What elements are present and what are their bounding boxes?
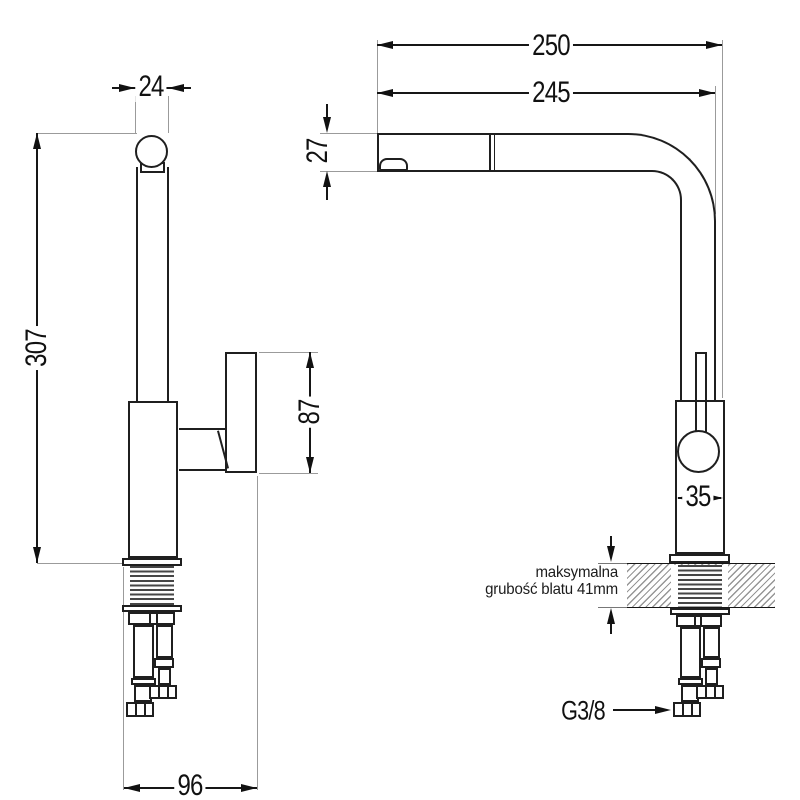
ext-250-right: [722, 40, 723, 398]
ext-250-left: [377, 40, 378, 133]
front-handle-plate: [225, 352, 257, 473]
arrow-87-top: [306, 352, 314, 368]
front-hose-b-nut: [149, 685, 177, 699]
front-hose-a-coupler: [131, 678, 156, 685]
front-knob-circle: [135, 135, 168, 168]
front-connector-line-2: [156, 613, 158, 624]
ext-96-left: [123, 567, 124, 790]
side-hose-a: [680, 627, 701, 678]
side-handle-knob: [677, 430, 720, 473]
leaderline-g38: [613, 709, 657, 711]
front-hose-a-nut: [126, 702, 154, 717]
ext-27-top: [320, 133, 377, 134]
side-nut-a-facet-2: [691, 703, 693, 716]
front-hose-b-coupler: [154, 658, 174, 668]
side-pullout-joint-1: [489, 134, 491, 170]
side-spout-inner: [377, 170, 682, 400]
dimshaft-27-top: [326, 104, 328, 117]
side-aerator: [379, 158, 408, 172]
front-spout-column: [136, 167, 169, 401]
arrow-27-top: [323, 117, 331, 133]
ext-245-right: [715, 86, 716, 214]
side-hose-b-nut: [696, 685, 724, 699]
side-hose-a-coupler: [678, 678, 703, 685]
arrow-96-left: [124, 784, 140, 792]
front-hose-b-tube: [158, 668, 171, 685]
label-27: 27: [303, 138, 333, 163]
side-hose-a-nut: [673, 702, 701, 717]
side-connector-line-2: [700, 616, 702, 626]
ext-24-right: [168, 96, 169, 133]
label-35: 35: [682, 482, 714, 512]
side-hose-b-tube: [705, 668, 718, 685]
side-nut-b-facet-1: [705, 686, 707, 698]
arrow-250-left: [377, 41, 393, 49]
dimshaft-27-bottom: [326, 187, 328, 200]
arrow-307-bottom: [33, 547, 41, 563]
arrow-g38: [655, 706, 671, 714]
label-24: 24: [135, 72, 167, 102]
side-threaded-shank: [678, 565, 722, 607]
front-base-flange: [122, 558, 182, 566]
label-87: 87: [295, 396, 325, 428]
arrow-41-bottom: [607, 608, 615, 624]
arrow-245-right: [699, 89, 715, 97]
label-245: 245: [529, 78, 573, 108]
front-nut-a-facet-2: [144, 703, 146, 716]
side-nut-a-facet-1: [682, 703, 684, 716]
ext-87-bottom: [259, 473, 318, 474]
side-hose-b: [703, 627, 720, 658]
side-base-flange: [669, 554, 730, 563]
arrow-27-bottom: [323, 171, 331, 187]
front-nut-a-facet-1: [135, 703, 137, 716]
arrow-87-bottom: [306, 457, 314, 473]
side-mounting-plate: [670, 608, 730, 615]
arrow-41-top: [607, 546, 615, 562]
ext-307-top: [37, 133, 137, 134]
side-handle-stem: [695, 352, 707, 437]
arrow-24-right: [168, 84, 184, 92]
side-pullout-joint-2: [494, 134, 496, 170]
front-hose-a: [133, 625, 154, 678]
arrow-250-right: [706, 41, 722, 49]
ext-307-bottom: [37, 563, 122, 564]
ext-96-right: [257, 476, 258, 790]
front-mounting-plate: [122, 605, 182, 612]
label-g38: G3/8: [561, 698, 605, 725]
counter-note-line2: grubość blatu 41mm: [432, 581, 618, 598]
counter-thickness-note: maksymalna grubość blatu 41mm: [432, 564, 618, 598]
side-nut-b-facet-2: [714, 686, 716, 698]
label-307: 307: [22, 326, 52, 370]
front-body: [128, 401, 178, 558]
label-250: 250: [529, 31, 573, 61]
label-96: 96: [174, 771, 206, 800]
front-hose-connector: [128, 612, 175, 625]
side-hose-b-coupler: [701, 658, 721, 668]
front-nut-b-facet-1: [158, 686, 160, 698]
counter-note-line1: maksymalna: [432, 564, 618, 581]
front-nut-b-facet-2: [167, 686, 169, 698]
arrow-245-left: [377, 89, 393, 97]
front-hose-b: [156, 625, 173, 658]
arrow-96-right: [241, 784, 257, 792]
front-connector-line-1: [149, 613, 151, 624]
dimshaft-41-bottom: [610, 623, 612, 634]
arrow-307-top: [33, 133, 41, 149]
faucet-dimension-drawing: 24 307 87 96 250 245 27 35 G3/8 maksymal…: [0, 0, 800, 800]
arrow-24-left: [119, 84, 135, 92]
side-hose-connector: [676, 615, 722, 627]
side-connector-line-1: [694, 616, 696, 626]
front-threaded-shank: [130, 566, 174, 605]
